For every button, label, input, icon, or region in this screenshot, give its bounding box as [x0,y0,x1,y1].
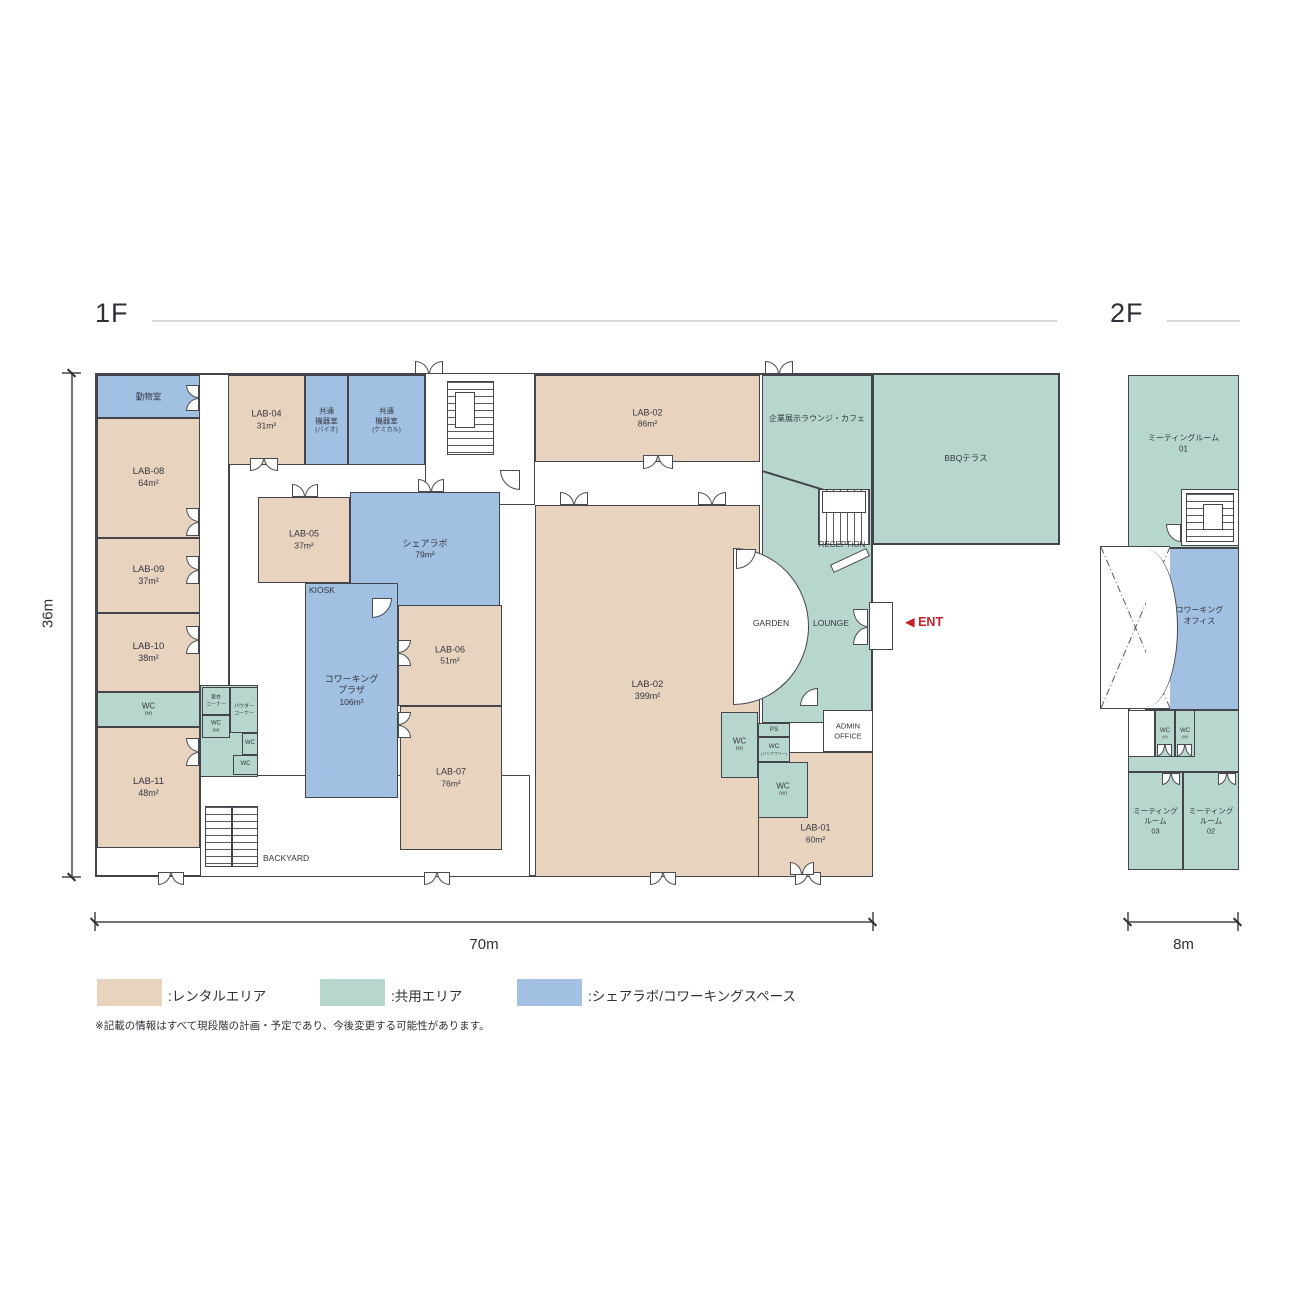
lab-05-label: LAB-05 [259,529,349,541]
wc-w-mid: WC(W) [202,715,230,738]
changing-corner: 更衣コーナー [202,687,230,715]
wc-m-east: WC(M) [721,712,758,778]
mtg-room-03-label: ミーティング [1129,806,1182,816]
lab-09-label: 37m² [98,576,199,588]
wc-w-2f-label: (W) [1176,735,1194,740]
door-symbol [415,361,443,374]
door-symbol [186,556,199,584]
dimension-line-36m [71,373,73,877]
powder-corner-label: パウダー [231,704,257,711]
admin-office: ADMINOFFICE [823,710,873,752]
label-lounge: LOUNGE [799,618,863,628]
label-reception: RECEPTION [808,540,876,549]
floor-1f-rule [152,320,1057,322]
door-symbol [1177,744,1192,756]
floor-2f-title: 2F [1110,298,1144,329]
equip-room-chemical-label: 機器室 [349,416,424,426]
lab-09-label: LAB-09 [98,563,199,575]
equip-room-chemical-label: (ケミカル) [349,426,424,434]
legend-label-cowork: :シェアラボ/コワーキングスペース [588,985,796,1005]
lab-04: LAB-0431m² [228,375,305,465]
door-symbol [765,361,793,374]
floor-1f-title: 1F [95,298,129,329]
lab-10: LAB-1038m² [97,613,200,692]
lab-05-label: 37m² [259,540,349,551]
changing-corner-label: 更衣 [203,695,229,702]
legend-label-rental: :レンタルエリア [168,985,266,1005]
legend-swatch-shared [320,979,385,1006]
door-symbol [158,872,184,885]
lab-08: LAB-0864m² [97,418,200,538]
lab-10-label: LAB-10 [98,640,199,652]
cowork-plaza-label: プラザ [306,685,397,697]
lab-01-label: 60m² [759,834,872,845]
wc-m-east-label: (M) [722,747,757,753]
mtg-room-03-label: ルーム [1129,816,1182,826]
legend-swatch-rental [97,979,162,1006]
animal-room-label: 動物室 [98,391,199,402]
lab-07-label: 76m² [401,778,501,789]
lab-02-main: LAB-02399m² [535,505,760,877]
legend-label-shared: :共用エリア [391,985,462,1005]
animal-room: 動物室 [97,375,200,418]
lab-06: LAB-0651m² [398,605,502,706]
wc-w-east: WC(W) [758,762,808,818]
lab-08-label: 64m² [98,478,199,490]
lab-02-main-label: 399m² [536,691,759,703]
disclaimer-note: ※記載の情報はすべて現段階の計画・予定であり、今後変更する可能性があります。 [95,1018,490,1033]
mtg-room-02-label: ルーム [1184,816,1238,826]
corridor-wall [228,463,230,687]
floorplan-canvas: 1F 2F 動物室LAB-0864m²LAB-0937m²LAB-1038m²W… [0,0,1300,1300]
door-symbol [424,872,450,885]
door-symbol [643,455,673,469]
dimension-line-8m [1128,921,1239,923]
wc-barrier-free-label: WC [759,743,789,751]
label-garden: GARDEN [733,618,809,628]
door-symbol [1162,773,1180,785]
wc-mid-1-label: WC [243,740,257,748]
wc-barrier-free-label: (バリアフリー) [759,751,789,756]
lab-02-north-label: 86m² [536,419,759,430]
dimension-label-70m: 70m [95,936,873,953]
mtg-room-02-label: ミーティング [1184,806,1238,816]
door-symbol [418,479,444,492]
lab-09: LAB-0937m² [97,538,200,613]
stairs-reception-core [822,491,866,513]
wc-m-west-label: WC [98,701,199,711]
dimension-line-70m [95,921,873,923]
wc-m-2f-label: (M) [1156,735,1174,740]
stairs-2f-core [1203,504,1223,530]
admin-office-label: ADMIN [824,721,872,731]
equip-room-chemical-label: 共通 [349,406,424,416]
lab-07-label: LAB-07 [401,767,501,779]
equip-room-chemical: 共通機器室(ケミカル) [348,375,425,465]
equip-room-bio: 共通機器室(バイオ) [305,375,348,465]
door-symbol [1218,773,1236,785]
lab-08-label: LAB-08 [98,466,199,478]
wc-m-west-label: (M) [98,711,199,717]
wc-m-west: WC(M) [97,692,200,727]
equip-room-bio-label: (バイオ) [306,426,347,434]
lab-11-label: 48m² [98,788,199,800]
changing-corner-label: コーナー [203,701,229,708]
door-symbol [250,458,278,471]
door-symbol [698,492,726,505]
door-symbol [790,862,814,875]
stairs-main-core [455,392,475,428]
cowork-plaza-label: コワーキング [306,673,397,685]
lab-11: LAB-1148m² [97,727,200,848]
door-symbol [398,640,411,666]
door-symbol [736,549,756,569]
dimension-label-36m: 36m [40,584,57,644]
wc-mid-2-label: WC [234,761,257,769]
door-symbol [1166,524,1181,542]
door-symbol [398,712,411,738]
lab-06-label: LAB-06 [399,644,501,656]
powder-corner-label: コーナー [231,710,257,717]
door-symbol [800,688,818,706]
door-symbol [500,470,520,490]
door-symbol [186,508,199,536]
door-symbol [292,484,318,497]
lab-05: LAB-0537m² [258,497,350,583]
door-symbol [560,492,588,505]
wc-w-east-label: WC [759,782,807,792]
dimension-label-8m: 8m [1128,936,1239,953]
lab-06-label: 51m² [399,656,501,667]
ps: PS [758,723,790,737]
lab-02-main-label: LAB-02 [536,679,759,691]
wc-barrier-free: WC(バリアフリー) [758,737,790,762]
wc-mid-2: WC [233,755,258,775]
share-lab-label: シェアラボ [351,538,499,550]
lab-01-label: LAB-01 [759,823,872,835]
wc-m-east-label: WC [722,737,757,747]
mtg-room-02-label: 02 [1184,826,1238,836]
lab-04-label: LAB-04 [229,409,304,421]
wc-mid-1: WC [242,733,258,755]
mtg-room-03: ミーティングルーム03 [1128,772,1183,870]
ps-label: PS [759,726,789,734]
mtg-room-02: ミーティングルーム02 [1183,772,1239,870]
label-kiosk: KIOSK [309,585,369,595]
wc-w-2f-label: WC [1176,727,1194,735]
legend-swatch-cowork [517,979,582,1006]
label-exhibit-lounge-cafe: 企業展示ラウンジ・カフェ [762,413,872,424]
corridor-2f-west [1128,710,1155,757]
stairs-backyard-rail [231,806,233,867]
floor-2f-rule [1167,320,1240,322]
wc-w-mid-label: (W) [203,728,229,733]
door-symbol [372,598,392,618]
powder-corner: パウダーコーナー [230,687,258,733]
equip-room-bio-label: 共通 [306,406,347,416]
lab-11-label: LAB-11 [98,775,199,787]
door-symbol [186,626,199,654]
lab-07: LAB-0776m² [400,706,502,850]
admin-office-label: OFFICE [824,731,872,741]
entrance-vestibule [869,602,893,650]
cowork-plaza-label: 106m² [306,697,397,708]
door-symbol [650,872,676,885]
mtg-room-01-label: 01 [1129,444,1238,454]
lab-04-label: 31m² [229,420,304,431]
wc-m-2f-label: WC [1156,727,1174,735]
label-entrance: ◀ ENT [905,614,995,629]
label-bbq-terrace: BBQテラス [872,452,1060,464]
lab-02-north: LAB-0286m² [535,375,760,462]
mtg-room-03-label: 03 [1129,826,1182,836]
share-lab-label: 79m² [351,550,499,561]
door-symbol [1157,744,1172,756]
label-backyard: BACKYARD [263,853,363,863]
door-symbol [186,738,199,766]
wc-w-mid-label: WC [203,720,229,728]
wc-w-east-label: (W) [759,792,807,798]
equip-room-bio-label: 機器室 [306,416,347,426]
door-symbol [186,385,199,411]
lab-10-label: 38m² [98,653,199,665]
mtg-room-01-label: ミーティングルーム [1129,434,1238,444]
lab-02-north-label: LAB-02 [536,407,759,419]
